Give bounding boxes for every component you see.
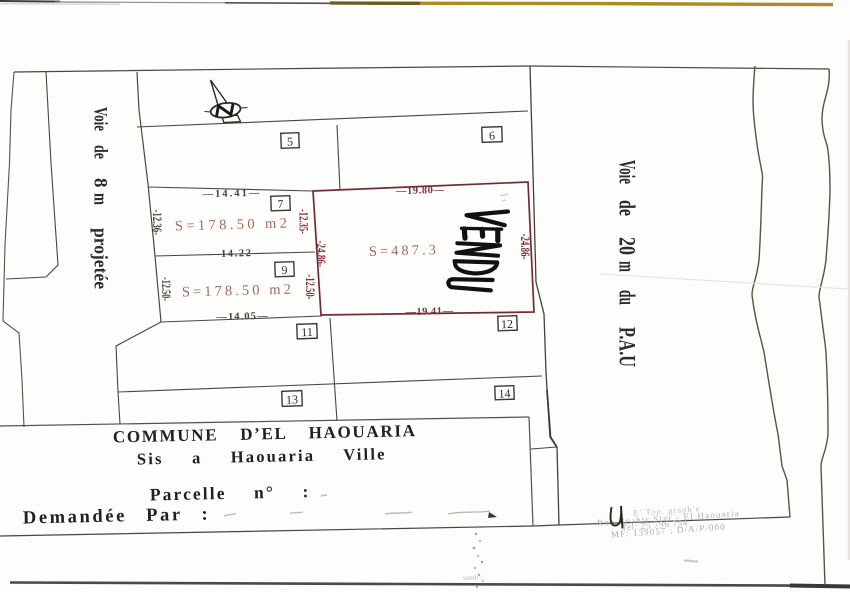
svg-text:—14.22—: —14.22—	[208, 248, 264, 260]
svg-text:Voie: Voie	[615, 160, 640, 184]
svg-text:14: 14	[498, 386, 510, 400]
svg-text:m: m	[615, 261, 640, 272]
svg-text:8: 8	[90, 178, 111, 188]
svg-text:-24.86-: -24.86-	[518, 234, 532, 260]
svg-text:de: de	[90, 145, 111, 159]
svg-text:13: 13	[286, 392, 298, 406]
svg-text:de: de	[615, 200, 640, 216]
svg-text:-12.35-: -12.35-	[297, 209, 311, 234]
svg-text:m: m	[90, 193, 111, 205]
svg-text:7: 7	[277, 197, 283, 211]
svg-text:P.A.U: P.A.U	[615, 327, 640, 367]
svg-text:9: 9	[281, 263, 287, 277]
svg-text:—14.05—: —14.05—	[215, 311, 268, 323]
svg-text:12: 12	[501, 317, 513, 331]
svg-text:—14.41—: —14.41—	[201, 188, 260, 201]
svg-text:20: 20	[615, 237, 640, 255]
svg-text:S=178.50 m2: S=178.50 m2	[175, 216, 287, 235]
svg-text:du: du	[615, 290, 640, 305]
svg-text:5: 5	[287, 134, 293, 148]
svg-text:Voie: Voie	[90, 107, 111, 131]
svg-text:-12.50-: -12.50-	[303, 275, 317, 300]
svg-text:south··.: south··.	[463, 573, 485, 582]
svg-text:Demandée Par :: Demandée Par :	[23, 505, 211, 529]
svg-text:—19.41—: —19.41—	[404, 306, 453, 318]
svg-text:projetée: projetée	[90, 228, 111, 289]
svg-text:-12.36-: -12.36-	[150, 210, 164, 236]
svg-text:Parcelle n° :: Parcelle n° :	[150, 481, 311, 504]
svg-text:6: 6	[489, 128, 495, 142]
svg-text:-12.50-: -12.50-	[159, 277, 173, 301]
svg-text:11: 11	[301, 325, 313, 339]
svg-text:-24.86-: -24.86-	[314, 241, 328, 268]
svg-text:S=178.50 m2: S=178.50 m2	[182, 282, 291, 301]
svg-text:—19.80—: —19.80—	[395, 185, 445, 197]
